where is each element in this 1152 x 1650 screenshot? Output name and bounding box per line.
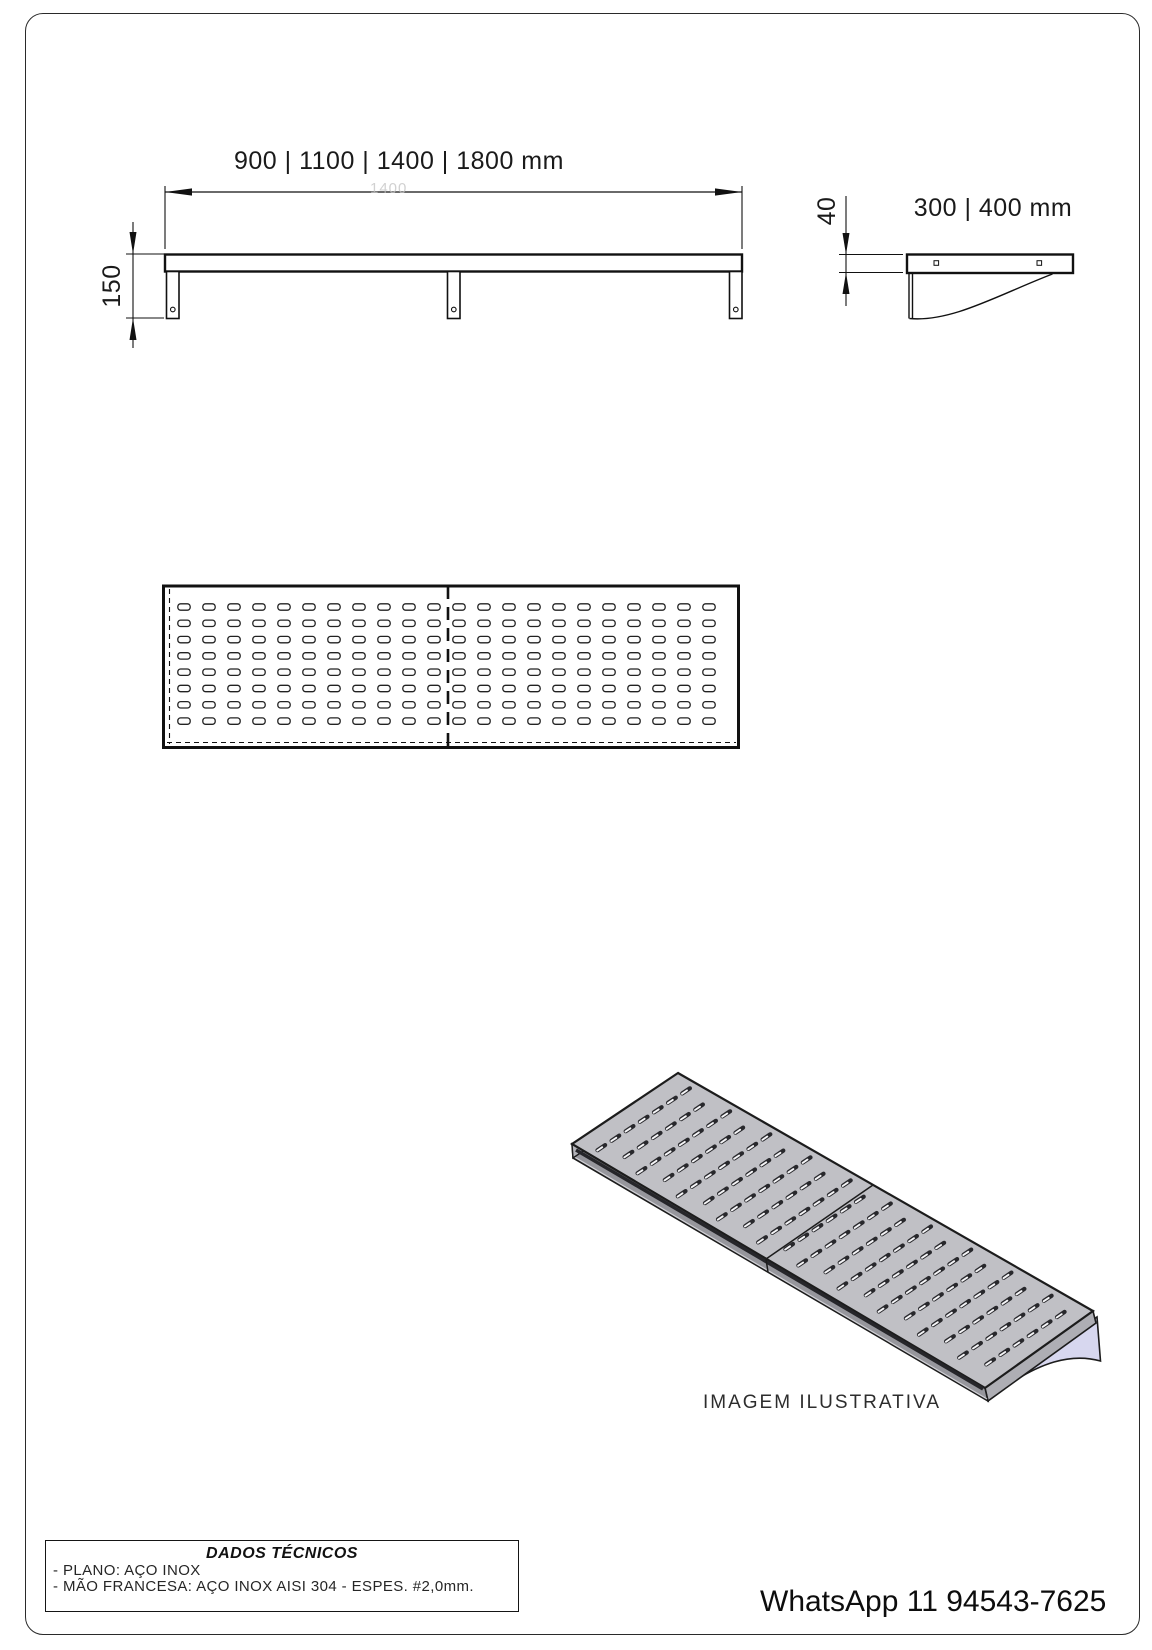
front-height-dimension-label: 150 bbox=[87, 261, 137, 311]
plan-outline bbox=[164, 586, 739, 748]
iso-view-drawing bbox=[572, 1073, 1101, 1401]
front-brackets bbox=[167, 272, 743, 319]
spec-sheet-page: 900 | 1100 | 1400 | 1800 mm 1400 150 300… bbox=[0, 0, 1152, 1650]
technical-data-box: DADOS TÉCNICOS - PLANO: AÇO INOX - MÃO F… bbox=[45, 1540, 519, 1612]
whatsapp-contact: WhatsApp 11 94543-7625 bbox=[760, 1585, 1105, 1619]
illustrative-image-caption: IMAGEM ILUSTRATIVA bbox=[672, 1392, 972, 1414]
arrowhead-left bbox=[165, 188, 192, 195]
technical-data-title: DADOS TÉCNICOS bbox=[46, 1545, 518, 1563]
plan-view-drawing bbox=[164, 586, 739, 748]
technical-data-line: - PLANO: AÇO INOX bbox=[46, 1563, 518, 1579]
erased-dimension-artifact: 1400 bbox=[370, 180, 407, 197]
front-width-dimension-label: 900 | 1100 | 1400 | 1800 mm bbox=[234, 147, 534, 176]
shelf-side-profile bbox=[907, 255, 1073, 274]
shelf-front-profile bbox=[165, 255, 742, 272]
technical-drawing bbox=[0, 0, 1152, 1650]
side-thickness-dimension-label: 40 bbox=[805, 189, 849, 233]
side-bracket-profile bbox=[909, 273, 1053, 319]
technical-data-line: - MÃO FRANCESA: AÇO INOX AISI 304 - ESPE… bbox=[46, 1579, 518, 1595]
iso-top-face bbox=[572, 1073, 1093, 1388]
side-depth-dimension-label: 300 | 400 mm bbox=[903, 194, 1083, 223]
arrowhead-right bbox=[715, 188, 742, 195]
front-view-drawing bbox=[126, 186, 742, 348]
